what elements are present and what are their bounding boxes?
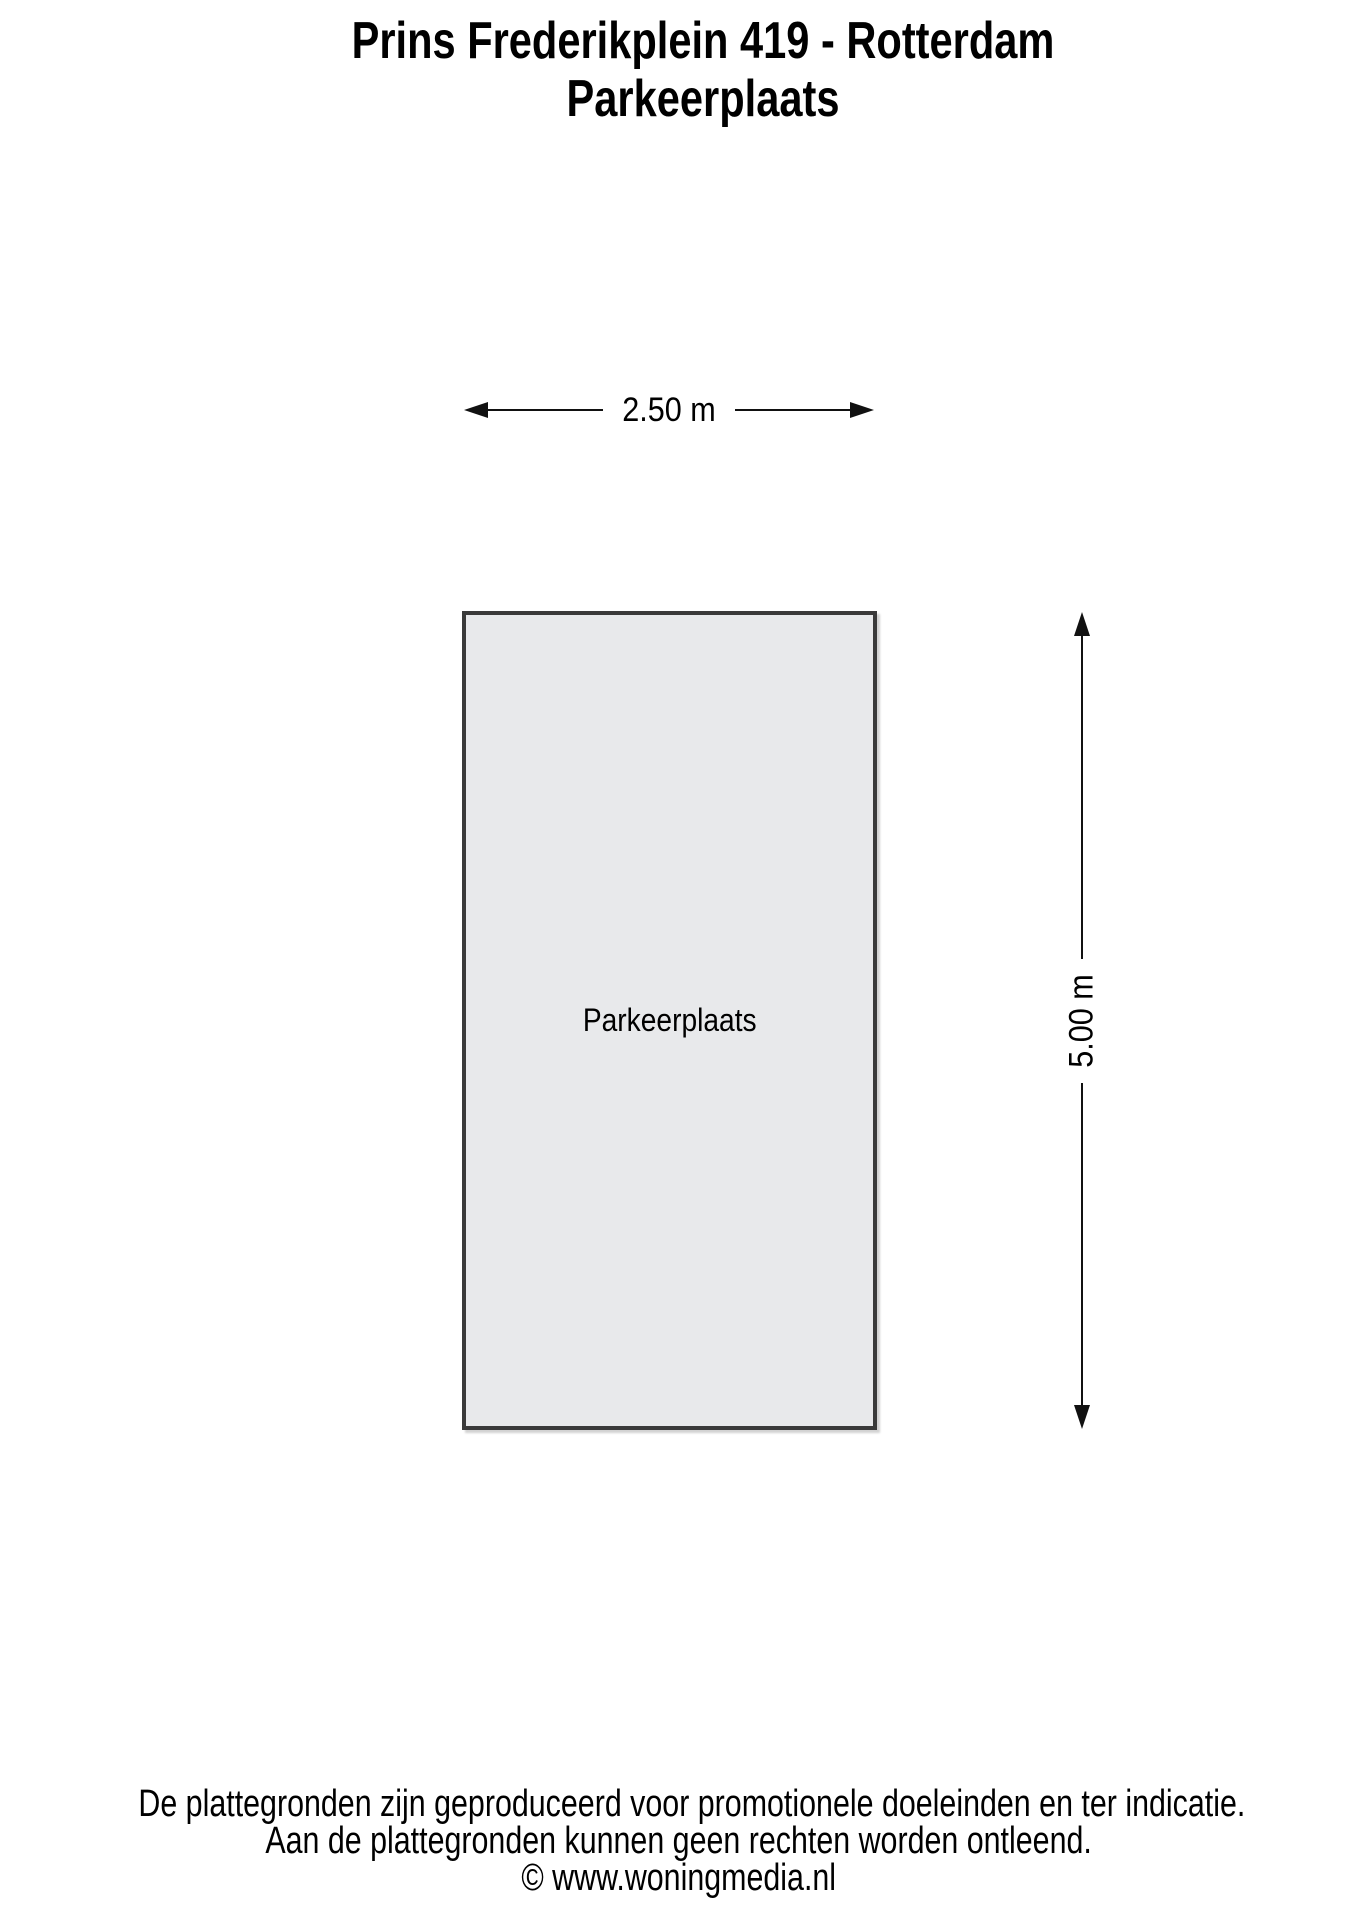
footer-copyright: © www.woningmedia.nl xyxy=(0,1860,1358,1897)
arrowhead-up-icon xyxy=(1074,612,1090,636)
dimension-line xyxy=(1081,636,1083,959)
footer-disclaimer-line-1: De plattegronden zijn geproduceerd voor … xyxy=(0,1786,1358,1823)
plan-title-line-1: Prins Frederikplein 419 - Rotterdam xyxy=(352,12,1055,70)
plan-title: Prins Frederikplein 419 - Rotterdam Park… xyxy=(352,12,1055,128)
parking-space-room: Parkeerplaats xyxy=(462,611,877,1430)
height-dimension-label: 5.00 m xyxy=(1063,974,1102,1068)
arrowhead-left-icon xyxy=(464,402,488,418)
width-dimension: 2.50 m xyxy=(464,398,874,422)
footer-disclaimer-line-2: Aan de plattegronden kunnen geen rechten… xyxy=(0,1823,1358,1860)
height-dimension-label-slot: 5.00 m xyxy=(1062,959,1102,1083)
arrowhead-right-icon xyxy=(850,402,874,418)
dimension-line xyxy=(1081,1083,1083,1406)
plan-title-line-2: Parkeerplaats xyxy=(352,70,1055,128)
footer-disclaimer: De plattegronden zijn geproduceerd voor … xyxy=(0,1786,1358,1897)
width-dimension-label: 2.50 m xyxy=(610,398,729,422)
arrowhead-down-icon xyxy=(1074,1405,1090,1429)
dimension-line xyxy=(488,409,603,411)
floorplan-page: Prins Frederikplein 419 - Rotterdam Park… xyxy=(0,0,1358,1920)
room-label: Parkeerplaats xyxy=(583,1002,757,1039)
height-dimension: 5.00 m xyxy=(1062,612,1102,1429)
dimension-line xyxy=(735,409,850,411)
